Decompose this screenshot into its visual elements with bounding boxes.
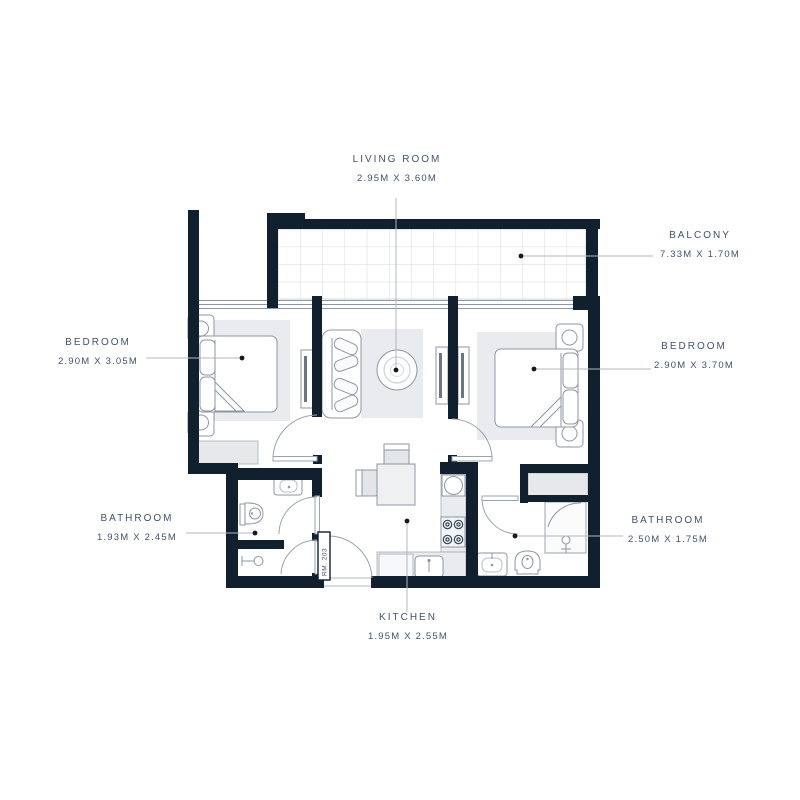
room-dims: 2.50M X 1.75M bbox=[628, 534, 708, 545]
dining-set bbox=[356, 444, 415, 505]
room-name: LIVING ROOM bbox=[353, 154, 442, 165]
room-name: BATHROOM bbox=[628, 515, 708, 526]
room-name: BATHROOM bbox=[97, 513, 177, 524]
label-bathroom-left: BATHROOM 1.93M X 2.45M bbox=[97, 513, 177, 543]
door-swing-bedroom-left bbox=[273, 415, 317, 459]
door-leaf-bathroom-right bbox=[482, 496, 518, 501]
room-dims: 7.33M X 1.70M bbox=[660, 249, 740, 260]
pillow bbox=[563, 353, 578, 388]
door-leaf-bedroom-left bbox=[273, 457, 317, 462]
chair-back bbox=[356, 470, 362, 496]
toilet-dot bbox=[526, 558, 528, 560]
tv-screen bbox=[439, 353, 442, 398]
bathroom-left-fixtures bbox=[240, 471, 302, 566]
door-swing-shower-room bbox=[281, 540, 317, 574]
room-name: BEDROOM bbox=[58, 337, 138, 348]
chair-back bbox=[384, 444, 409, 450]
door-swing-bathroom-right bbox=[482, 498, 518, 534]
toilet-right bbox=[515, 551, 540, 574]
toilet-dot bbox=[251, 512, 253, 514]
label-balcony: BALCONY 7.33M X 1.70M bbox=[660, 230, 740, 260]
room-name: BEDROOM bbox=[654, 341, 734, 352]
kitchen-round-sink-box bbox=[442, 475, 465, 496]
floorplan-page: RM. 203 LIVING ROOM 2.95M X 3.60M BALCON… bbox=[0, 0, 800, 800]
room-dims: 2.90M X 3.70M bbox=[654, 360, 734, 371]
door-leaf-bedroom-right bbox=[452, 457, 492, 462]
window-band bbox=[199, 301, 588, 309]
label-bedroom-right: BEDROOM 2.90M X 3.70M bbox=[654, 341, 734, 371]
shower-left-icon bbox=[242, 556, 263, 566]
bathroom-right-fixtures bbox=[477, 502, 586, 576]
room-dims: 1.95M X 2.55M bbox=[368, 631, 448, 642]
kitchen-cabinet bbox=[379, 554, 413, 579]
pillow bbox=[563, 390, 578, 424]
drain-dot bbox=[491, 564, 494, 567]
drain-dot bbox=[288, 486, 291, 489]
faucet-dot bbox=[427, 559, 430, 562]
tv-screen bbox=[304, 356, 307, 402]
entry-threshold bbox=[324, 578, 371, 586]
label-bathroom-right: BATHROOM 2.50M X 1.75M bbox=[628, 515, 708, 545]
balcony-tiles bbox=[278, 229, 586, 299]
dining-table bbox=[377, 464, 415, 505]
tv-screen bbox=[461, 353, 464, 398]
pillow bbox=[200, 377, 215, 411]
nightstand bbox=[556, 324, 583, 351]
door-swing-bathroom-left bbox=[279, 497, 317, 534]
door-leaf-bathroom-left bbox=[315, 496, 320, 534]
label-living-room: LIVING ROOM 2.95M X 3.60M bbox=[353, 154, 442, 184]
room-dims: 2.90M X 3.05M bbox=[58, 356, 138, 367]
room-name: BALCONY bbox=[660, 230, 740, 241]
room-dims: 2.95M X 3.60M bbox=[353, 173, 442, 184]
floorplan-drawing: RM. 203 bbox=[0, 0, 800, 800]
closet-bathroom-right bbox=[528, 473, 588, 496]
room-dims: 1.93M X 2.45M bbox=[97, 532, 177, 543]
room-name: KITCHEN bbox=[368, 612, 448, 623]
unit-number-label: RM. 203 bbox=[322, 548, 329, 576]
label-bedroom-left: BEDROOM 2.90M X 3.05M bbox=[58, 337, 138, 367]
label-kitchen: KITCHEN 1.95M X 2.55M bbox=[368, 612, 448, 642]
closet-bedroom-left bbox=[189, 441, 258, 464]
door-swing-entry bbox=[330, 536, 372, 578]
